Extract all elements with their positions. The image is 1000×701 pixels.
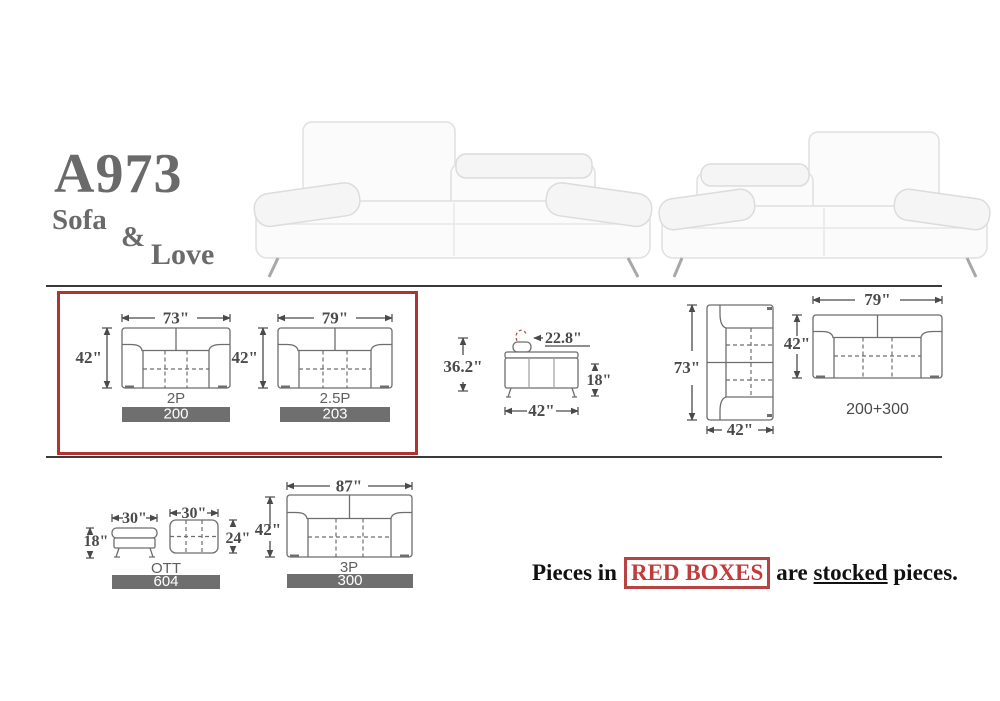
loveseat-headrest-flap [701, 164, 809, 186]
dim-depth-label: 42" [232, 348, 258, 367]
dim-total-height-label: 36.2" [443, 357, 482, 376]
divider-top [46, 285, 942, 287]
diagram-combo-top: 79" 42" 200+300 [773, 288, 953, 423]
sofa-side-body [505, 358, 578, 388]
diagram-2p: 73" 42" 2P 200 [55, 302, 245, 424]
diagram-2-5p: 79" 42" 2.5P 203 [222, 302, 412, 424]
sofa-headrest-flap [456, 154, 592, 178]
sofa-right-leg [628, 258, 638, 277]
dim-width-label: 73" [163, 309, 189, 328]
footer-note-middle: are [776, 560, 808, 585]
code-label: 203 [322, 406, 347, 423]
stocked-underline: stocked [814, 560, 888, 585]
model-title: A973 [54, 146, 182, 202]
ampersand: & [121, 223, 145, 252]
diagram-ottoman: 30" 18" 30" 24" OTT 604 [75, 475, 270, 590]
footer-note: Pieces inRED BOXESare stocked pieces. [532, 560, 958, 586]
red-boxes-highlight: RED BOXES [624, 557, 770, 589]
ottoman-cushion [112, 528, 157, 538]
divider-bottom [46, 456, 942, 458]
ottoman-base [114, 538, 155, 548]
dim-depth-label: 42" [528, 401, 554, 420]
armrest-band [505, 352, 578, 358]
diagram-3p: 87" 42" 3P 300 [250, 473, 435, 591]
dim-back-depth-label: 22.8" [545, 330, 582, 347]
dim-seat-height-label: 18" [587, 372, 612, 389]
piece-label: 2P [167, 390, 185, 407]
dim-front-width-label: 30" [122, 510, 147, 527]
headrest [513, 342, 531, 352]
code-label: 200 [163, 406, 188, 423]
piece-label: 2.5P [320, 390, 351, 407]
footer-note-prefix: Pieces in [532, 560, 617, 585]
dim-width-label: 79" [864, 290, 890, 309]
code-label: 300 [337, 572, 362, 589]
dim-width-label: 87" [336, 477, 362, 496]
dim-depth-label: 42" [784, 334, 810, 353]
subtitle-love: Love [151, 240, 214, 270]
subtitle-sofa: Sofa [52, 206, 107, 235]
dim-top-depth-label: 24" [226, 530, 251, 547]
spec-sheet-page: A973 Sofa & Love [0, 0, 1000, 701]
dim-width-label: 79" [322, 309, 348, 328]
dim-depth-label: 42" [727, 420, 753, 439]
loveseat-right-leg [967, 258, 976, 277]
sofa-left-leg [269, 258, 278, 277]
dim-depth-label: 42" [76, 348, 102, 367]
code-label: 604 [153, 573, 178, 590]
diagram-side-view: 36.2" 22.8" 18" 42" [430, 325, 642, 425]
footer-note-suffix: pieces. [893, 560, 958, 585]
loveseat-left-leg [674, 258, 682, 277]
sofa-photo [248, 108, 658, 283]
dim-length-label: 73" [674, 358, 700, 377]
dim-depth-label: 42" [255, 520, 281, 539]
dim-height-label: 18" [84, 533, 109, 550]
combo-code-label: 200+300 [846, 401, 909, 418]
loveseat-photo [657, 122, 992, 282]
headrest-adjust-arc [516, 330, 526, 341]
